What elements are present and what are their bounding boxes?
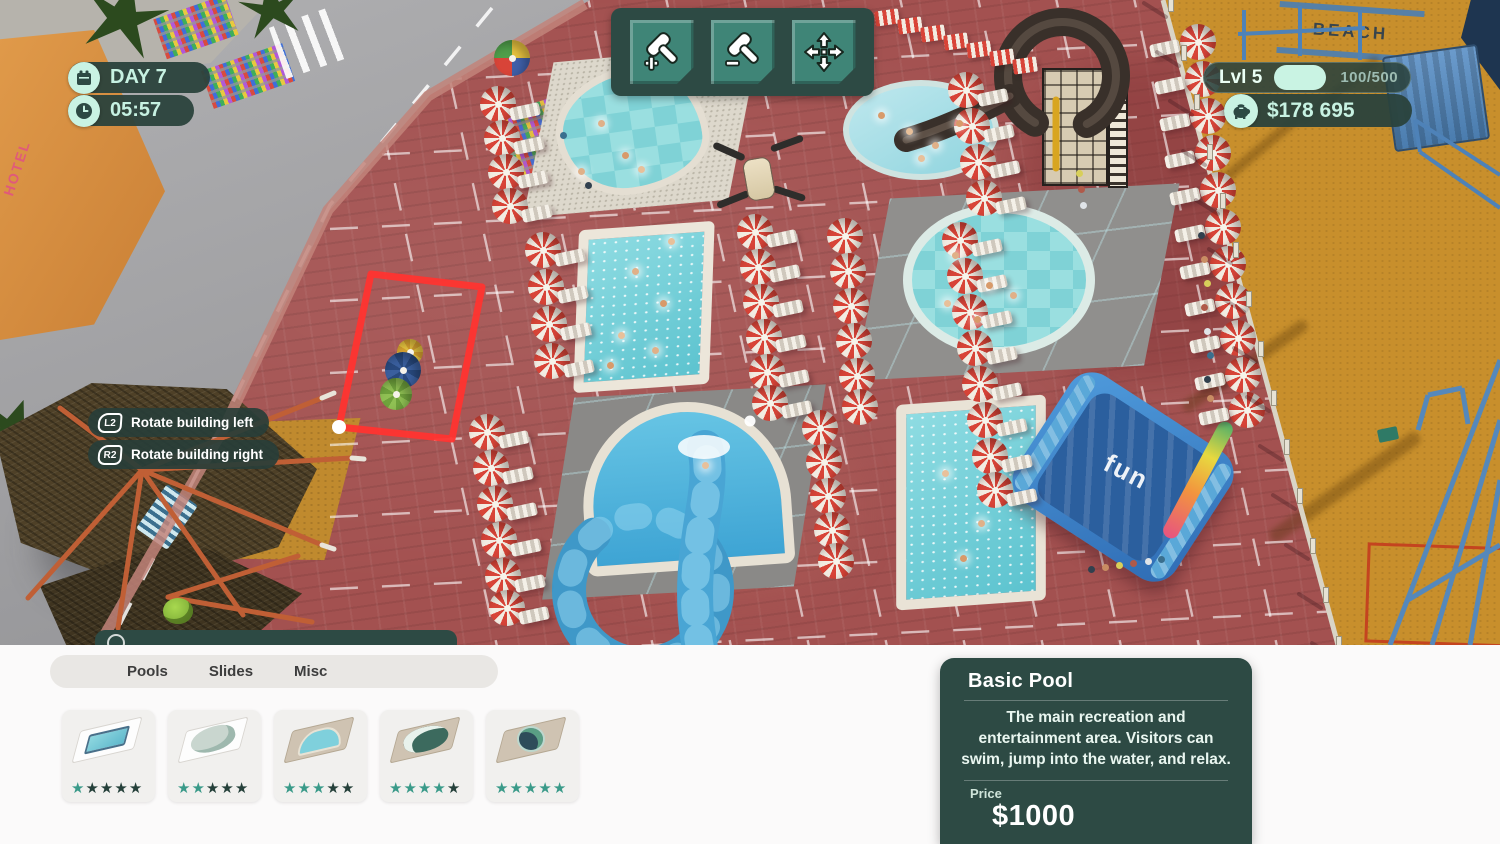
star-icon: ★ [177,781,190,796]
fence-post [1336,636,1342,645]
umbrella[interactable] [833,288,869,324]
build-menu: PoolsSlidesMisc ★★★★★★★★★★★★★★★★★★★★★★★★… [0,645,1500,844]
fence-post [1284,439,1290,455]
visitor [1158,556,1165,563]
swimmer [952,252,959,259]
swimmer [668,238,675,245]
star-icon: ★ [297,781,310,796]
demolish-button[interactable] [711,20,775,84]
visitor [1088,566,1095,573]
day-label: DAY 7 [110,66,167,89]
build-toolbar [611,8,874,96]
visitor [1204,280,1211,287]
swimmer [942,470,949,477]
star-rating: ★★★★★ [177,781,248,796]
star-icon: ★ [114,781,127,796]
selected-umbrella[interactable] [380,378,412,410]
umbrella[interactable] [1205,209,1241,245]
star-icon: ★ [71,781,84,796]
umbrella[interactable] [1195,135,1231,171]
hammer-plus-icon [640,30,684,74]
star-icon: ★ [524,781,537,796]
swimmer [598,120,605,127]
tab-misc[interactable]: Misc [294,663,327,680]
hint-pill-partial [95,630,457,645]
swimmer [638,166,645,173]
star-rating: ★★★★★ [71,781,142,796]
detail-panel: Basic Pool The main recreation and enter… [940,658,1252,844]
visitor [1198,232,1205,239]
fence-post [1233,242,1239,258]
tower-stairs [1108,66,1128,188]
fence-post [1271,390,1277,406]
swimmer [622,152,629,159]
fence-post [1220,193,1226,209]
swimmer [652,347,659,354]
star-rating: ★★★★★ [283,781,354,796]
star-icon: ★ [432,781,445,796]
visitor [1204,328,1211,335]
fence-post [1246,291,1252,307]
swimmer [974,316,981,323]
star-icon: ★ [206,781,219,796]
swimmer [932,142,939,149]
trigger-button-icon: R2 [97,445,122,465]
control-hints: L2Rotate building leftR2Rotate building … [88,408,279,469]
hint-l2: L2Rotate building left [88,408,269,437]
star-icon: ★ [235,781,248,796]
visitor [1201,256,1208,263]
hammer-minus-icon [721,30,765,74]
tab-pools[interactable]: Pools [127,663,168,680]
detail-title: Basic Pool [968,670,1073,693]
divider [964,700,1228,701]
build-button[interactable] [630,20,694,84]
rect-pool-center[interactable] [573,221,714,393]
fence-post [1181,45,1187,61]
umbrella[interactable] [1200,172,1236,208]
star-icon: ★ [85,781,98,796]
star-icon: ★ [129,781,142,796]
money-label: $178 695 [1267,99,1355,123]
drone-rotor [712,141,746,161]
visitor [1207,352,1214,359]
star-icon: ★ [191,781,204,796]
umbrella[interactable] [818,543,854,579]
visitor [560,132,567,139]
umbrella[interactable] [836,323,872,359]
visitor [1201,304,1208,311]
umbrella[interactable] [830,253,866,289]
move-arrows-icon [802,30,846,74]
swimmer [632,268,639,275]
star-icon: ★ [389,781,402,796]
umbrella-multicolor[interactable] [494,40,530,76]
visitor [585,182,592,189]
level-progress-fill [1274,65,1326,90]
drone-rotor [770,134,804,152]
star-icon: ★ [283,781,296,796]
visitor [1204,376,1211,383]
hint-label: Rotate building left [131,415,253,430]
item-thumbnail [380,710,473,770]
trigger-button-icon: L2 [97,413,122,433]
fence-post [1310,538,1316,554]
fence-post [1168,0,1174,12]
visitor [1102,564,1109,571]
calendar-icon [68,62,100,94]
swimmer [944,300,951,307]
swimmer [978,520,985,527]
time-badge: 05:57 [68,95,194,126]
swimmer [1010,292,1017,299]
swimmer [960,555,967,562]
build-item-basic-pool[interactable]: ★★★★★ [62,710,155,802]
tab-slides[interactable]: Slides [209,663,253,680]
star-rating: ★★★★★ [495,781,566,796]
marked-sand-plot [1364,542,1500,645]
slide-tower[interactable] [1042,68,1108,186]
item-thumbnail [168,710,261,770]
visitor [1078,186,1085,193]
swimmer [578,168,585,175]
build-item-rounded-pool[interactable]: ★★★★★ [274,710,367,802]
star-icon: ★ [418,781,431,796]
swimmer [878,112,885,119]
tab-bar: PoolsSlidesMisc [50,655,498,688]
star-icon: ★ [326,781,339,796]
hint-label: Rotate building right [131,447,263,462]
star-icon: ★ [100,781,113,796]
price-value: $1000 [992,800,1075,833]
item-thumbnail [486,710,579,770]
fence-post [1207,144,1213,160]
build-item-slide-pool[interactable]: ★★★★★ [168,710,261,802]
level-bar: Lvl 5 100/500 [1203,62,1411,93]
button-glyph [107,634,125,645]
piggy-bank-icon [1224,94,1258,128]
umbrella[interactable] [842,389,878,425]
build-item-curvy-pool[interactable]: ★★★★★ [380,710,473,802]
drone-rotor [716,190,750,209]
clock-icon [68,95,100,127]
game-screen: HOTEL BEACH [0,0,1500,844]
star-icon: ★ [509,781,522,796]
swimmer [618,332,625,339]
day-badge: DAY 7 [68,62,210,93]
build-item-round-pool[interactable]: ★★★★★ [486,710,579,802]
move-button[interactable] [792,20,856,84]
detail-description: The main recreation and entertainment ar… [958,707,1234,770]
swimmer [956,120,963,127]
price-label: Price [970,786,1002,801]
umbrella[interactable] [802,410,838,446]
swimmer [702,462,709,469]
visitor [1207,395,1214,402]
item-thumbnail [62,710,155,770]
swimmer [906,128,913,135]
star-rating: ★★★★★ [389,781,460,796]
star-icon: ★ [403,781,416,796]
hint-r2: R2Rotate building right [88,440,279,469]
turtle-mascot[interactable] [163,598,193,624]
star-icon: ★ [538,781,551,796]
swimmer [607,362,614,369]
star-icon: ★ [341,781,354,796]
star-icon: ★ [220,781,233,796]
level-progress-text: 100/500 [1340,69,1398,86]
visitor [1080,202,1087,209]
swimmer [918,155,925,162]
fence-post [1297,488,1303,504]
fence-post [1323,587,1329,603]
divider [964,780,1228,781]
time-label: 05:57 [110,99,161,122]
umbrella[interactable] [810,478,846,514]
swimmer [986,282,993,289]
drone[interactable] [712,138,808,218]
star-icon: ★ [553,781,566,796]
star-icon: ★ [312,781,325,796]
drone-rotor [772,185,806,202]
money-badge: $178 695 [1224,94,1412,127]
fence-post [1194,94,1200,110]
star-icon: ★ [495,781,508,796]
swimmer [660,300,667,307]
star-icon: ★ [447,781,460,796]
visitor [1145,558,1152,565]
visitor [1116,562,1123,569]
item-thumbnail [274,710,367,770]
umbrella[interactable] [827,218,863,254]
fence-post [1258,341,1264,357]
umbrella[interactable] [806,444,842,480]
level-label: Lvl 5 [1219,67,1262,89]
visitor [1130,560,1137,567]
visitor [1076,170,1083,177]
